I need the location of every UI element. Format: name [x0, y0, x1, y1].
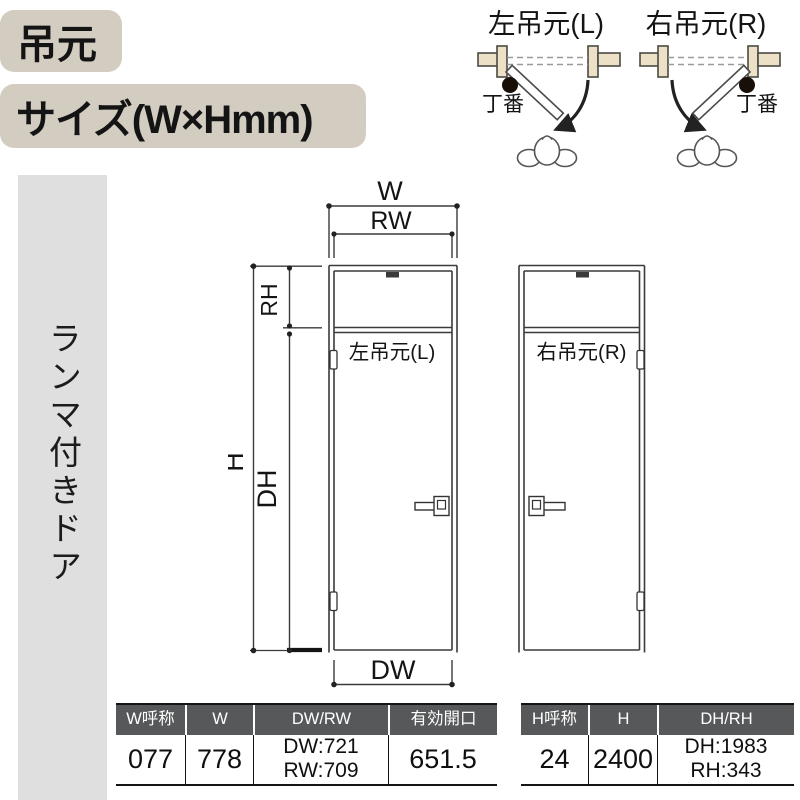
- swing-right-title: 右吊元(R): [646, 8, 767, 39]
- dim-label-dw: DW: [371, 655, 416, 685]
- person-icon-left: [518, 136, 577, 167]
- dim-dot: [287, 331, 292, 336]
- height-table-header-row: H呼称 H DH/RH: [521, 705, 794, 735]
- dim-label-dh: DH: [252, 470, 282, 509]
- dim-dot: [454, 203, 460, 209]
- person-icon-right: [678, 136, 737, 167]
- door-closed-dashed-lines: [507, 58, 588, 65]
- width-table-header: W: [185, 705, 253, 735]
- size-badge: サイズ(W×Hmm): [0, 84, 366, 148]
- dim-label-rh: RH: [256, 283, 282, 316]
- hinge-icons-right-door: [637, 351, 644, 611]
- dw-rw-cell: DW:721 RW:709: [253, 735, 388, 784]
- width-table-header: W呼称: [116, 705, 185, 735]
- dh-rh-cell: DH:1983 RH:343: [657, 735, 794, 784]
- category-strip-label: ランマ付きドア: [39, 321, 87, 587]
- wall-left-diagram: [478, 46, 620, 77]
- effective-opening-cell: 651.5: [388, 735, 497, 784]
- width-value-cell: 778: [185, 735, 253, 784]
- hinge-label-right: 丁番: [736, 93, 778, 116]
- width-code-cell: 077: [116, 735, 185, 784]
- hinge-dot-right: [739, 77, 755, 93]
- width-table-header-row: W呼称 W DW/RW 有効開口: [116, 705, 497, 735]
- height-table-header: DH/RH: [657, 705, 794, 735]
- swing-arrow-left: [557, 80, 588, 129]
- hinge-side-badge-label: 吊元: [17, 12, 97, 70]
- size-badge-label: サイズ(W×Hmm): [16, 87, 313, 145]
- hinge-label-left: 丁番: [482, 93, 524, 116]
- elevation-diagram: W RW H RH DH: [228, 175, 700, 700]
- swing-diagram-left: 左吊元(L) 丁番: [478, 8, 620, 167]
- right-door-label: 右吊元(R): [537, 341, 627, 364]
- extension-lines: [250, 266, 322, 650]
- door-closed-dashed-lines: [668, 58, 748, 65]
- dim-dot: [449, 682, 455, 688]
- handle-icon-left-door: [415, 497, 449, 516]
- dim-dot: [326, 203, 332, 209]
- height-table-header: H: [588, 705, 657, 735]
- swing-arrow-right: [672, 80, 703, 129]
- wall-right-diagram: [640, 46, 780, 77]
- handle-icon-right-door: [529, 497, 565, 516]
- dim-label-rw: RW: [370, 207, 412, 235]
- dim-dot: [251, 263, 257, 269]
- transom-vent-left: [386, 272, 399, 278]
- swing-left-title: 左吊元(L): [488, 8, 604, 39]
- transom-vent-right: [576, 272, 589, 278]
- right-door-frame: [519, 266, 645, 653]
- dim-label-h: H: [228, 452, 249, 472]
- dim-dot: [251, 648, 257, 654]
- swing-diagram-right: 右吊元(R) 丁番: [640, 8, 780, 167]
- dim-label-w: W: [377, 176, 403, 206]
- height-table-data-row: 24 2400 DH:1983 RH:343: [521, 735, 794, 784]
- width-table-header: DW/RW: [253, 705, 388, 735]
- width-table-data-row: 077 778 DW:721 RW:709 651.5: [116, 735, 497, 784]
- dim-rw: [334, 234, 452, 258]
- dim-dot: [287, 323, 292, 328]
- dim-dot: [331, 682, 337, 688]
- dim-dot: [287, 648, 292, 653]
- height-value-cell: 2400: [588, 735, 657, 784]
- hinge-dot-left: [502, 77, 518, 93]
- dim-dot: [449, 231, 454, 236]
- hinge-side-badge: 吊元: [0, 10, 122, 72]
- dim-dot: [287, 265, 292, 270]
- height-table-header: H呼称: [521, 705, 588, 735]
- dim-dot: [331, 231, 336, 236]
- category-strip: ランマ付きドア: [18, 175, 107, 800]
- left-door-frame: [329, 266, 457, 653]
- width-table-header: 有効開口: [388, 705, 497, 735]
- door-spec-sheet: 吊元 サイズ(W×Hmm) ランマ付きドア 左吊元(L): [0, 0, 800, 800]
- left-door-label: 左吊元(L): [349, 341, 436, 364]
- height-code-cell: 24: [521, 735, 588, 784]
- height-spec-table: H呼称 H DH/RH 24 2400 DH:1983 RH:343: [521, 703, 794, 786]
- width-spec-table: W呼称 W DW/RW 有効開口 077 778 DW:721 RW:709 6…: [116, 703, 497, 786]
- swing-direction-diagrams: 左吊元(L) 丁番 右吊元(R): [460, 0, 800, 180]
